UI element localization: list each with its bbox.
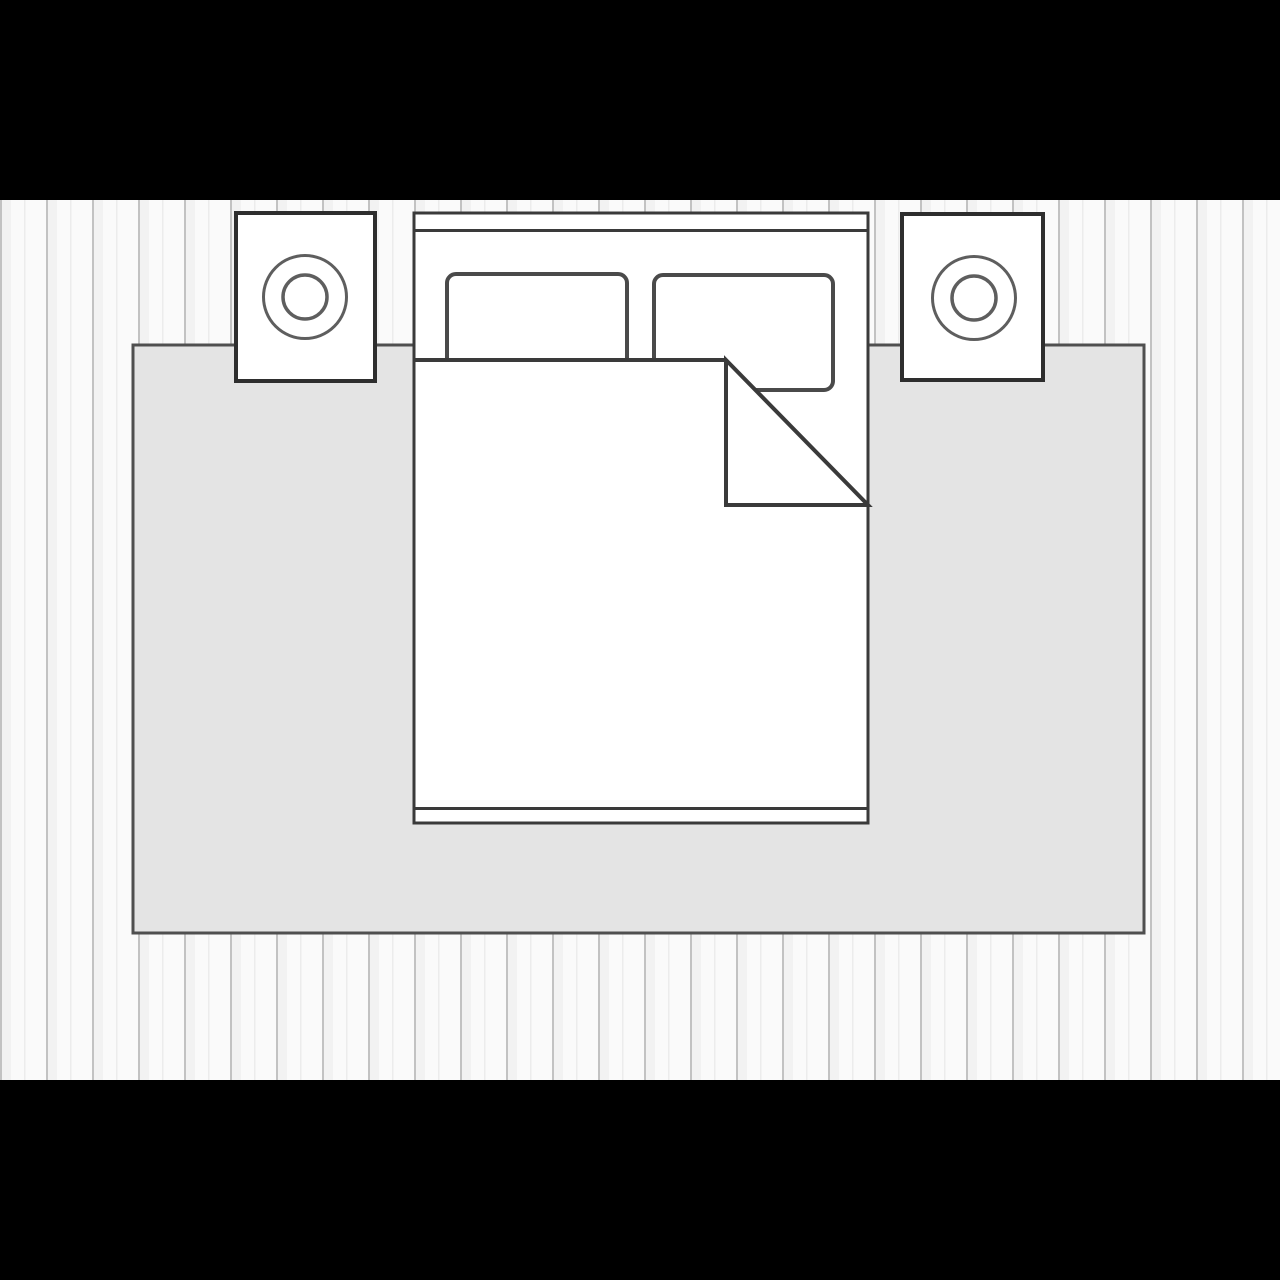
floor-plan-diagram bbox=[0, 0, 1280, 1280]
right-lamp-inner-icon bbox=[952, 276, 996, 320]
left-nightstand-group bbox=[236, 213, 375, 381]
right-nightstand-group bbox=[902, 214, 1043, 380]
screenshot-canvas bbox=[0, 0, 1280, 1280]
left-lamp-inner-icon bbox=[283, 275, 327, 319]
bed-group bbox=[414, 213, 868, 823]
